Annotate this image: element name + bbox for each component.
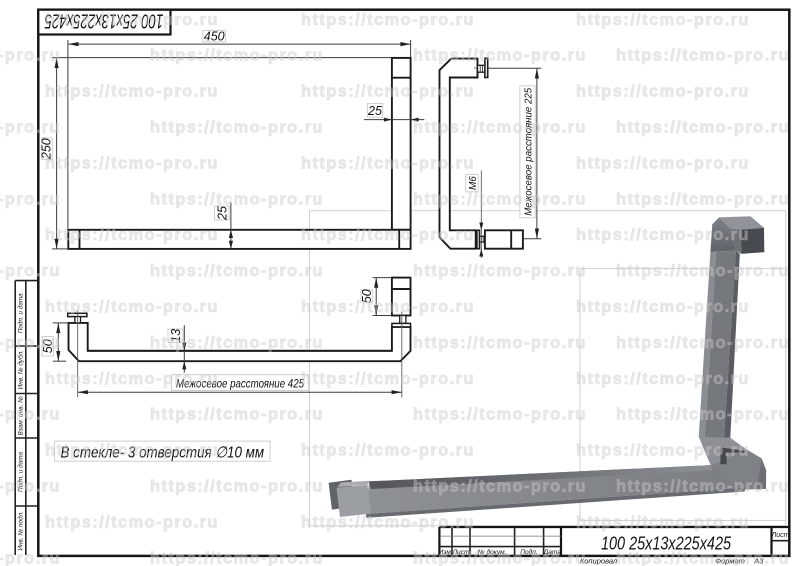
- svg-text:https://tcmo-pro.ru: https://tcmo-pro.ru: [576, 513, 749, 531]
- svg-text:https://tcmo-pro.ru: https://tcmo-pro.ru: [413, 47, 586, 65]
- svg-text:https://tcmo-pro.ru: https://tcmo-pro.ru: [413, 262, 586, 280]
- svg-text:https://tcmo-pro.ru: https://tcmo-pro.ru: [45, 370, 218, 388]
- svg-text:https://tcmo-pro.ru: https://tcmo-pro.ru: [301, 83, 474, 101]
- svg-text:https://tcmo-pro.ru: https://tcmo-pro.ru: [45, 298, 218, 316]
- svg-text:https://tcmo-pro.ru: https://tcmo-pro.ru: [616, 262, 789, 280]
- svg-text:https://tcmo-pro.ru: https://tcmo-pro.ru: [45, 83, 218, 101]
- svg-text:450: 450: [204, 30, 225, 44]
- svg-text:М6: М6: [468, 176, 479, 190]
- svg-text:https://tcmo-pro.ru: https://tcmo-pro.ru: [616, 406, 789, 424]
- svg-text:https://tcmo-pro.ru: https://tcmo-pro.ru: [576, 154, 749, 172]
- svg-text:25: 25: [367, 104, 382, 118]
- svg-text:https://tcmo-pro.ru: https://tcmo-pro.ru: [45, 11, 218, 29]
- svg-text:https://tcmo-pro.ru: https://tcmo-pro.ru: [576, 298, 749, 316]
- svg-text:https://tcmo-pro.ru: https://tcmo-pro.ru: [150, 190, 323, 208]
- svg-text:https://tcmo-pro.ru: https://tcmo-pro.ru: [150, 47, 323, 65]
- svg-text:https://tcmo-pro.ru: https://tcmo-pro.ru: [616, 119, 789, 137]
- svg-text:https://tcmo-pro.ru: https://tcmo-pro.ru: [301, 370, 474, 388]
- svg-text:Подп. и дата: Подп. и дата: [17, 293, 25, 333]
- svg-text:Копировал: Копировал: [580, 557, 618, 566]
- svg-text:https://tcmo-pro.ru: https://tcmo-pro.ru: [150, 262, 323, 280]
- svg-text:https://tcmo-pro.ru: https://tcmo-pro.ru: [413, 190, 586, 208]
- svg-text:https://tcmo-pro.ru: https://tcmo-pro.ru: [616, 190, 789, 208]
- svg-text:https://tcmo-pro.ru: https://tcmo-pro.ru: [301, 298, 474, 316]
- svg-text:https://tcmo-pro.ru: https://tcmo-pro.ru: [413, 478, 586, 496]
- svg-text:https://tcmo-pro.ru: https://tcmo-pro.ru: [150, 478, 323, 496]
- svg-text:https://tcmo-pro.ru: https://tcmo-pro.ru: [576, 442, 749, 460]
- svg-text:https://tcmo-pro.ru: https://tcmo-pro.ru: [413, 334, 586, 352]
- svg-text:https://tcmo-pro.ru: https://tcmo-pro.ru: [45, 513, 218, 531]
- svg-text:https://tcmo-pro.ru: https://tcmo-pro.ru: [45, 226, 218, 244]
- svg-text:Инв. № подл.: Инв. № подл.: [17, 511, 25, 551]
- svg-text:https://tcmo-pro.ru: https://tcmo-pro.ru: [301, 226, 474, 244]
- svg-text:https://tcmo-pro.ru: https://tcmo-pro.ru: [150, 406, 323, 424]
- svg-text:https://tcmo-pro.ru: https://tcmo-pro.ru: [413, 119, 586, 137]
- svg-text:https://tcmo-pro.ru: https://tcmo-pro.ru: [616, 549, 789, 566]
- svg-text:https://tcmo-pro.ru: https://tcmo-pro.ru: [45, 154, 218, 172]
- svg-text:https://tcmo-pro.ru: https://tcmo-pro.ru: [150, 334, 323, 352]
- svg-text:https://tcmo-pro.ru: https://tcmo-pro.ru: [0, 406, 60, 424]
- svg-text:https://tcmo-pro.ru: https://tcmo-pro.ru: [301, 513, 474, 531]
- svg-text:https://tcmo-pro.ru: https://tcmo-pro.ru: [576, 83, 749, 101]
- svg-text:Инв. № дубл.: Инв. № дубл.: [17, 350, 25, 389]
- svg-text:https://tcmo-pro.ru: https://tcmo-pro.ru: [301, 11, 474, 29]
- svg-text:https://tcmo-pro.ru: https://tcmo-pro.ru: [150, 119, 323, 137]
- svg-text:https://tcmo-pro.ru: https://tcmo-pro.ru: [0, 119, 60, 137]
- svg-text:https://tcmo-pro.ru: https://tcmo-pro.ru: [0, 262, 60, 280]
- svg-text:https://tcmo-pro.ru: https://tcmo-pro.ru: [301, 442, 474, 460]
- svg-text:https://tcmo-pro.ru: https://tcmo-pro.ru: [45, 442, 218, 460]
- svg-text:https://tcmo-pro.ru: https://tcmo-pro.ru: [301, 154, 474, 172]
- svg-text:Лист: Лист: [770, 532, 789, 539]
- svg-text:https://tcmo-pro.ru: https://tcmo-pro.ru: [0, 478, 60, 496]
- svg-text:https://tcmo-pro.ru: https://tcmo-pro.ru: [616, 478, 789, 496]
- svg-text:https://tcmo-pro.ru: https://tcmo-pro.ru: [0, 190, 60, 208]
- svg-text:https://tcmo-pro.ru: https://tcmo-pro.ru: [616, 334, 789, 352]
- svg-text:https://tcmo-pro.ru: https://tcmo-pro.ru: [576, 370, 749, 388]
- svg-text:https://tcmo-pro.ru: https://tcmo-pro.ru: [413, 406, 586, 424]
- svg-text:https://tcmo-pro.ru: https://tcmo-pro.ru: [616, 47, 789, 65]
- svg-text:https://tcmo-pro.ru: https://tcmo-pro.ru: [0, 549, 60, 566]
- svg-text:https://tcmo-pro.ru: https://tcmo-pro.ru: [576, 226, 749, 244]
- svg-text:https://tcmo-pro.ru: https://tcmo-pro.ru: [0, 334, 60, 352]
- svg-text:https://tcmo-pro.ru: https://tcmo-pro.ru: [150, 549, 323, 566]
- svg-text:https://tcmo-pro.ru: https://tcmo-pro.ru: [413, 549, 586, 566]
- svg-text:https://tcmo-pro.ru: https://tcmo-pro.ru: [576, 11, 749, 29]
- svg-text:https://tcmo-pro.ru: https://tcmo-pro.ru: [0, 47, 60, 65]
